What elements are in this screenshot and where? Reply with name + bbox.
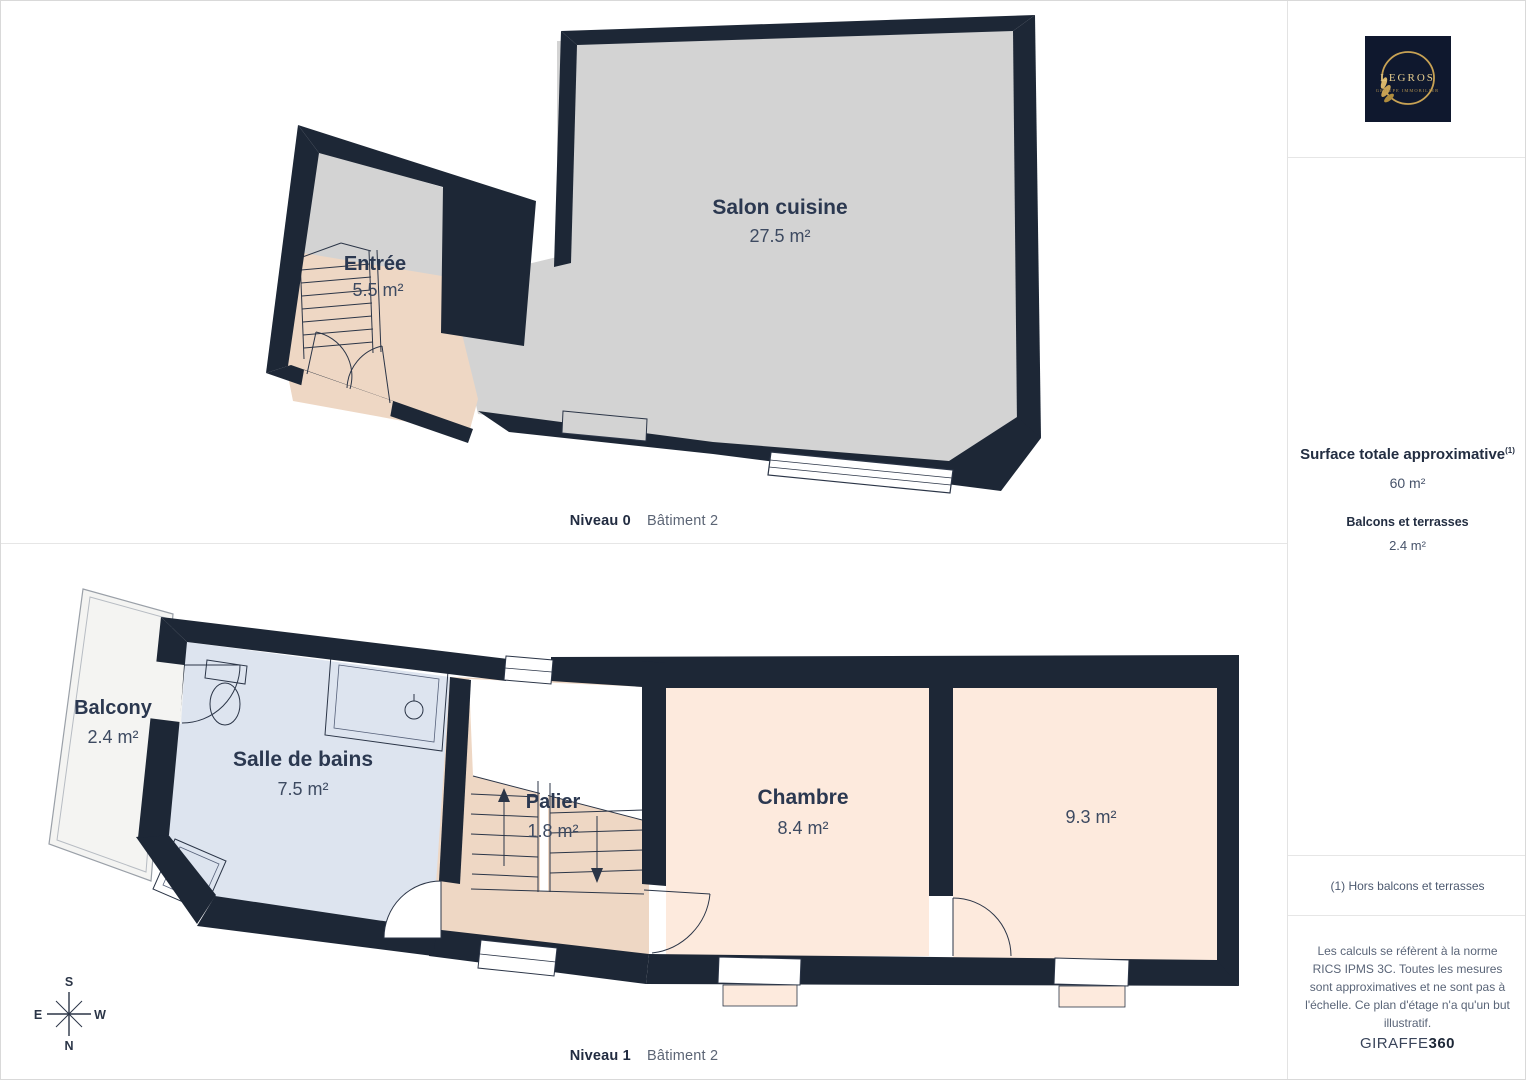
right-wall bbox=[1217, 655, 1239, 986]
logo-subtitle: GROUPE IMMOBILIER bbox=[1365, 88, 1451, 93]
bathroom-name-label: Salle de bains bbox=[233, 748, 373, 771]
entree-name-label: Entrée bbox=[344, 253, 406, 275]
surface-total-title: Surface totale approximative(1) bbox=[1288, 446, 1526, 463]
surface-total-value: 60 m² bbox=[1288, 475, 1526, 491]
caption-level-0: Niveau 0 bbox=[570, 513, 631, 529]
chambre-window-sill bbox=[723, 985, 797, 1006]
salon-floor bbox=[449, 29, 1021, 463]
floors-level0 bbox=[285, 29, 1021, 463]
compass-south-label: S bbox=[65, 975, 73, 989]
giraffe360-logo: GIRAFFE360 bbox=[1288, 1035, 1526, 1052]
salon-right-wall bbox=[1013, 15, 1041, 438]
floorplan-document: Salon cuisine 27.5 m² Entrée 5.5 m² Nive… bbox=[0, 0, 1526, 1080]
caption-building-0: Bâtiment 2 bbox=[647, 513, 718, 529]
surface-block: Surface totale approximative(1) 60 m² Ba… bbox=[1288, 446, 1526, 553]
floorplan-niveau-0: Salon cuisine 27.5 m² Entrée 5.5 m² bbox=[1, 1, 1287, 544]
surface-footnote-marker: (1) bbox=[1505, 446, 1515, 455]
agency-logo: LEGROS GROUPE IMMOBILIER bbox=[1365, 36, 1451, 122]
palier-area-label: 1.8 m² bbox=[527, 821, 578, 841]
salon-area-label: 27.5 m² bbox=[749, 226, 810, 246]
info-sidebar: LEGROS GROUPE IMMOBILIER Surface totale … bbox=[1287, 1, 1526, 1080]
footnote-text: (1) Hors balcons et terrasses bbox=[1330, 879, 1484, 893]
floorplan-niveau-1: Balcony 2.4 m² Salle de bains 7.5 m² Pal… bbox=[1, 544, 1287, 1080]
palier-chambre-wall bbox=[642, 661, 666, 886]
legal-section: Les calculs se réfèrent à la norme RICS … bbox=[1288, 916, 1526, 1080]
agency-logo-section: LEGROS GROUPE IMMOBILIER bbox=[1288, 1, 1526, 158]
plans-area: Salon cuisine 27.5 m² Entrée 5.5 m² Nive… bbox=[1, 1, 1287, 1080]
disclaimer-text: Les calculs se réfèrent à la norme RICS … bbox=[1288, 916, 1526, 1032]
compass-east-label: E bbox=[34, 1008, 42, 1022]
panel-niveau-1: Balcony 2.4 m² Salle de bains 7.5 m² Pal… bbox=[1, 544, 1287, 1080]
balcony-name-label: Balcony bbox=[74, 697, 153, 719]
surface-section: Surface totale approximative(1) 60 m² Ba… bbox=[1288, 158, 1526, 856]
chambre-window bbox=[718, 957, 801, 985]
chambre-room2-wall bbox=[929, 688, 953, 896]
balcony-door-gap bbox=[148, 661, 184, 722]
entree-area-label: 5.5 m² bbox=[352, 280, 403, 300]
giraffe-brand-suffix: 360 bbox=[1428, 1035, 1455, 1052]
logo-title: LEGROS bbox=[1365, 72, 1451, 84]
balconies-title: Balcons et terrasses bbox=[1288, 515, 1526, 529]
caption-niveau-0: Niveau 0Bâtiment 2 bbox=[1, 513, 1287, 529]
footnote-section: (1) Hors balcons et terrasses bbox=[1288, 856, 1526, 916]
room2-window-sill bbox=[1059, 986, 1125, 1007]
caption-niveau-1: Niveau 1Bâtiment 2 bbox=[1, 1048, 1287, 1064]
room2-area-label: 9.3 m² bbox=[1065, 807, 1116, 827]
caption-level-1: Niveau 1 bbox=[570, 1048, 631, 1064]
balconies-value: 2.4 m² bbox=[1288, 538, 1526, 553]
caption-building-1: Bâtiment 2 bbox=[647, 1048, 718, 1064]
chambre-name-label: Chambre bbox=[757, 786, 848, 809]
compass-rose: S E W N bbox=[34, 975, 106, 1053]
balcony-area-label: 2.4 m² bbox=[87, 727, 138, 747]
giraffe-brand-name: GIRAFFE bbox=[1360, 1035, 1429, 1052]
room2-window bbox=[1054, 958, 1129, 986]
bathroom-area-label: 7.5 m² bbox=[277, 779, 328, 799]
compass-west-label: W bbox=[94, 1008, 106, 1022]
panel-niveau-0: Salon cuisine 27.5 m² Entrée 5.5 m² Nive… bbox=[1, 1, 1287, 544]
palier-name-label: Palier bbox=[526, 791, 581, 813]
salon-name-label: Salon cuisine bbox=[712, 196, 847, 219]
surface-total-title-text: Surface totale approximative bbox=[1300, 446, 1505, 463]
chambre-area-label: 8.4 m² bbox=[777, 818, 828, 838]
